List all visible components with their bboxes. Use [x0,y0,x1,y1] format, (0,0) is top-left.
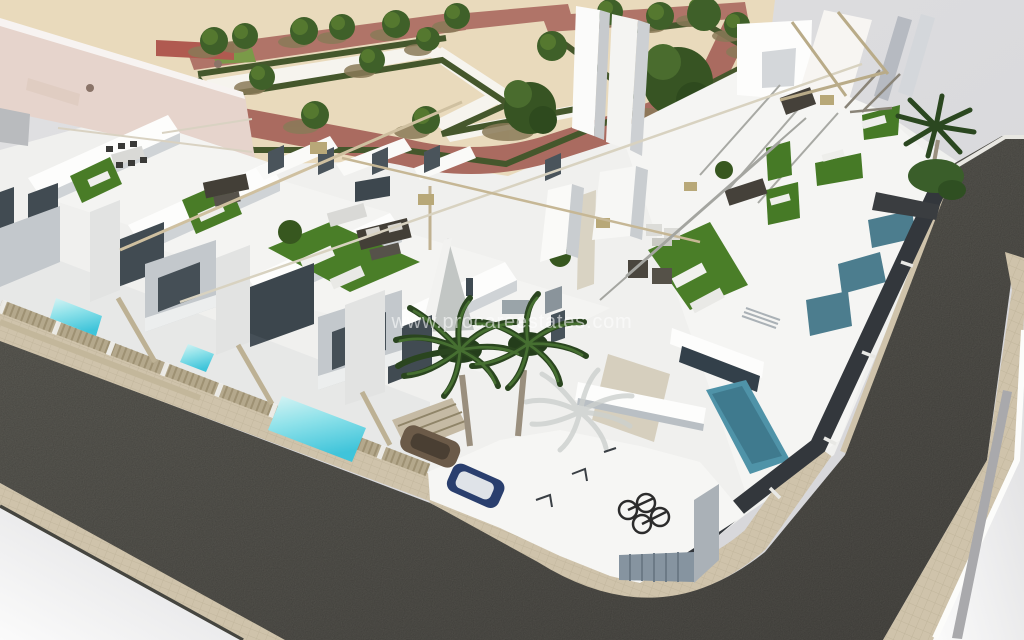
svg-text:www.procareestates.com: www.procareestates.com [390,311,632,333]
